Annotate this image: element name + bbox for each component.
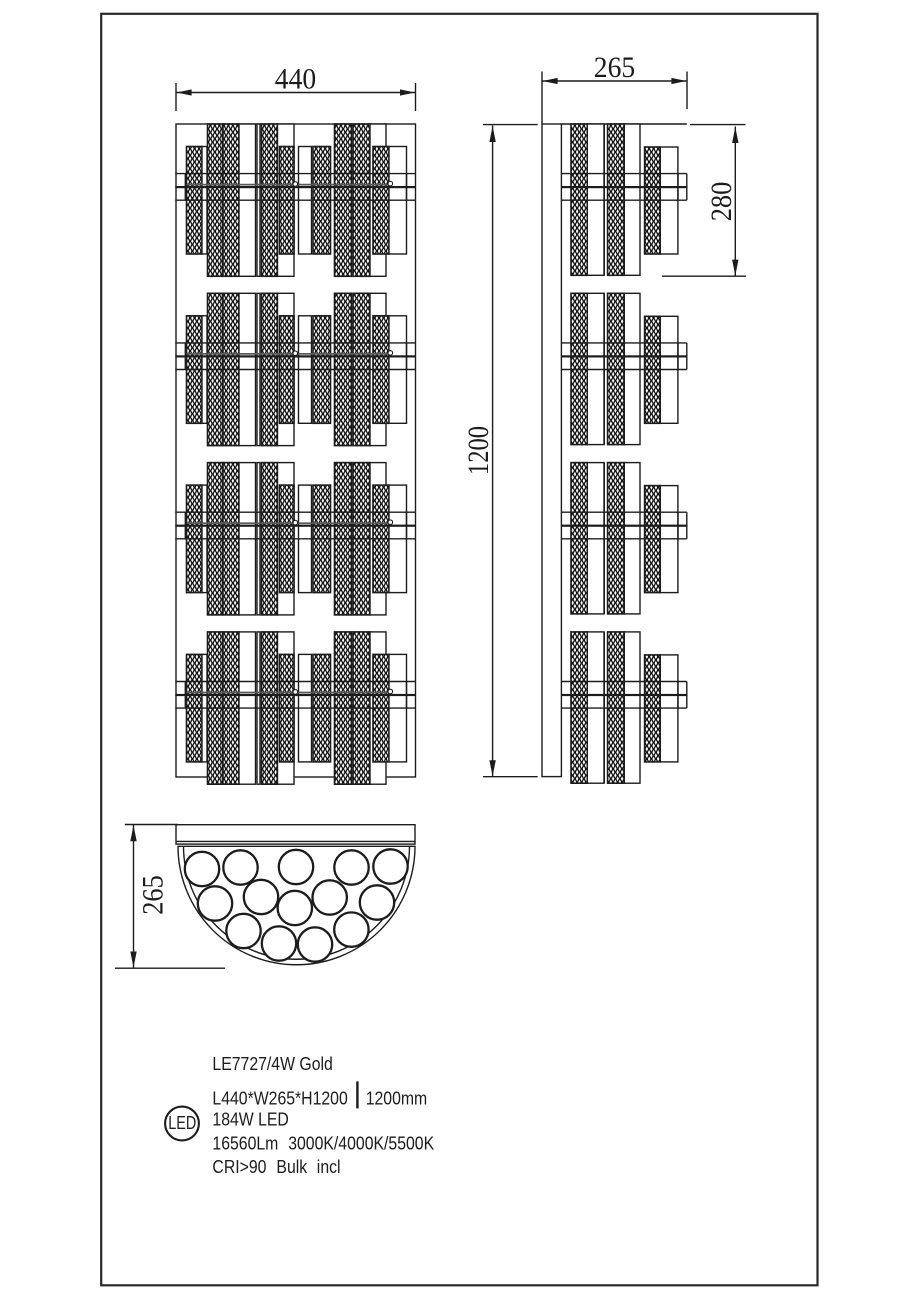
svg-text:3000K/4000K/5500K: 3000K/4000K/5500K	[288, 1132, 434, 1153]
svg-text:1200mm: 1200mm	[366, 1087, 428, 1108]
svg-text:280: 280	[705, 182, 738, 222]
svg-text:incl: incl	[317, 1156, 341, 1177]
svg-text:265: 265	[594, 51, 635, 84]
svg-text:184W LED: 184W LED	[212, 1108, 288, 1129]
svg-text:1200: 1200	[462, 426, 495, 475]
svg-text:265: 265	[137, 875, 170, 915]
svg-text:Bulk: Bulk	[276, 1156, 307, 1177]
svg-text:LED: LED	[168, 1112, 196, 1133]
svg-text:16560Lm: 16560Lm	[212, 1132, 278, 1153]
svg-text:440: 440	[275, 62, 316, 95]
svg-text:L440*W265*H1200: L440*W265*H1200	[212, 1087, 347, 1108]
svg-text:CRI>90: CRI>90	[212, 1156, 266, 1177]
svg-text:LE7727/4W Gold: LE7727/4W Gold	[212, 1053, 332, 1074]
